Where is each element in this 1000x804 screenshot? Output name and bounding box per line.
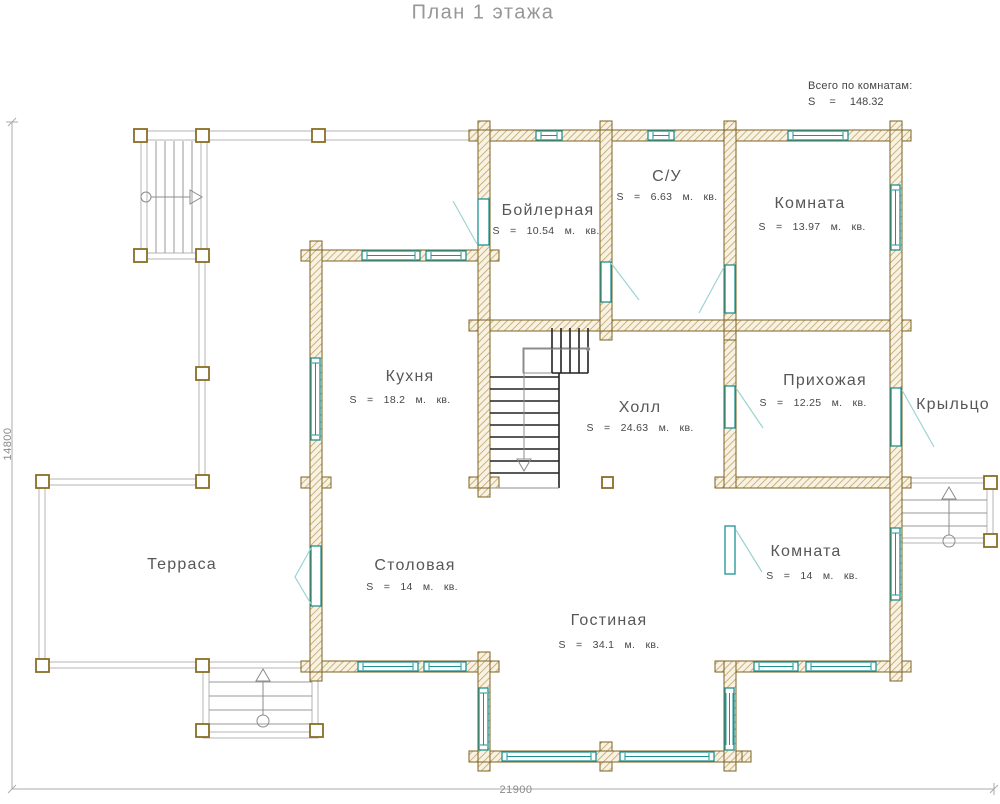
door-icon	[725, 386, 763, 428]
window-icon	[806, 662, 876, 671]
summary-caption: Всего по комнатам:	[808, 80, 913, 92]
room-label-hall: Холл	[619, 399, 662, 417]
window-icon	[725, 688, 734, 750]
window-icon	[424, 662, 466, 671]
window-icon	[891, 528, 900, 600]
dimension-vertical: 14800	[2, 427, 14, 460]
room-area-hall: S = 24.63 м. кв.	[586, 422, 693, 434]
window-icon	[788, 131, 848, 140]
room-label-room-top: Комната	[774, 195, 845, 213]
walls	[301, 121, 911, 771]
window-icon	[358, 662, 418, 671]
summary-total: S = 148.32	[808, 96, 884, 108]
window-icon	[426, 251, 466, 260]
door-icon	[453, 199, 489, 245]
floor-plan-page: План 1 этажа Всего по комнатам: S = 148.…	[0, 0, 1000, 804]
window-icon	[479, 688, 488, 750]
room-label-room-bottom: Комната	[770, 543, 841, 561]
room-area-entry-hall: S = 12.25 м. кв.	[759, 397, 866, 409]
door-icon	[725, 526, 762, 574]
room-label-entry-hall: Прихожая	[783, 372, 867, 390]
room-area-bathroom: S = 6.63 м. кв.	[617, 191, 718, 203]
window-icon	[891, 185, 900, 250]
window-icon	[362, 251, 420, 260]
window-icon	[620, 752, 714, 761]
room-area-living: S = 34.1 м. кв.	[559, 639, 660, 651]
room-label-living: Гостиная	[571, 612, 648, 630]
room-area-dining: S = 14 м. кв.	[366, 581, 458, 593]
door-icon	[295, 546, 321, 606]
door-icon	[699, 265, 735, 313]
stairs-main	[490, 328, 590, 488]
window-icon	[754, 662, 798, 671]
room-area-room-bottom: S = 14 м. кв.	[766, 570, 858, 582]
room-area-room-top: S = 13.97 м. кв.	[758, 221, 865, 233]
window-icon	[648, 131, 674, 140]
door-icon	[601, 262, 639, 302]
window-icon	[311, 358, 320, 440]
window-icon	[536, 131, 562, 140]
room-label-terrace: Терраса	[147, 556, 217, 574]
room-label-kitchen: Кухня	[386, 368, 435, 386]
window-icon	[502, 752, 596, 761]
room-area-kitchen: S = 18.2 м. кв.	[350, 394, 451, 406]
stairs-top-left	[141, 141, 202, 253]
room-label-porch: Крыльцо	[916, 396, 990, 414]
room-label-boiler: Бойлерная	[502, 202, 595, 220]
stairs-bottom	[209, 669, 312, 727]
dimension-horizontal: 21900	[499, 784, 532, 796]
room-area-boiler: S = 10.54 м. кв.	[492, 225, 599, 237]
room-label-bathroom: С/У	[652, 168, 682, 186]
room-label-dining: Столовая	[374, 557, 455, 575]
page-title: План 1 этажа	[412, 2, 555, 25]
